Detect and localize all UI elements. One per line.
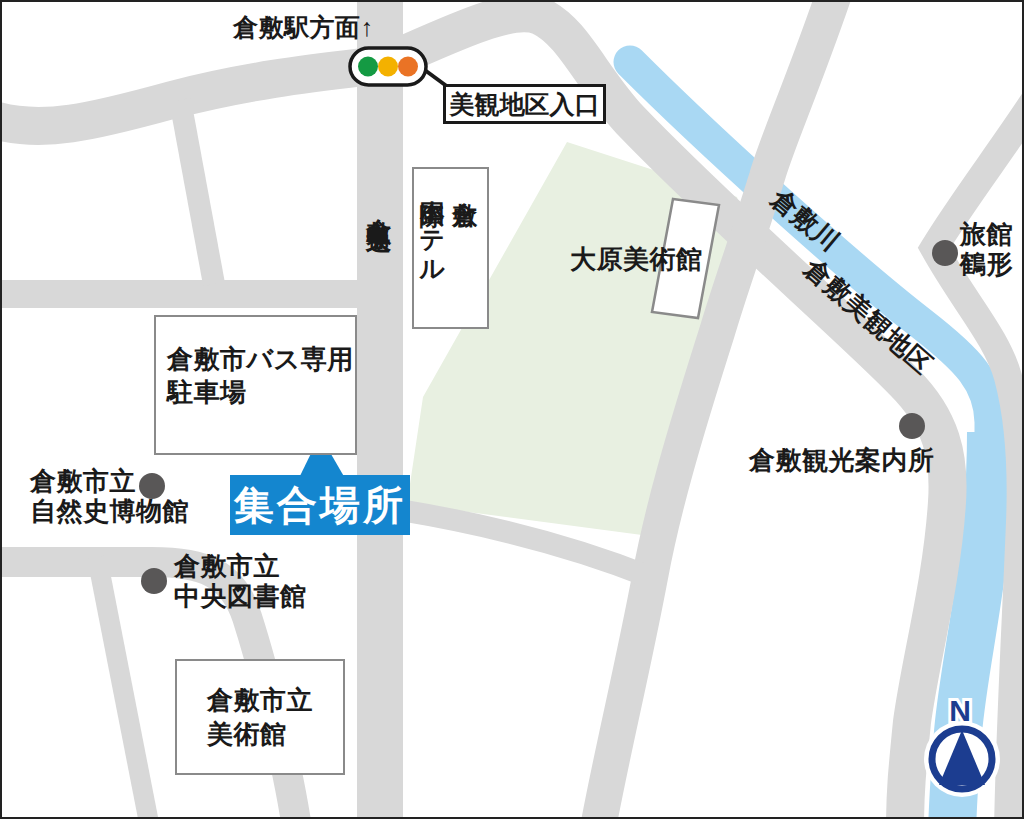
road-southwest-branch [97, 557, 150, 819]
city-art-museum-box: 倉敷市立 美術館 [175, 659, 345, 775]
meeting-point-callout: 集合場所 [230, 475, 410, 535]
road-west-diagonal [180, 100, 214, 284]
kokusai-hotel-label: 倉敷 国際ホテル [416, 183, 481, 271]
tourist-info-label: 倉敷観光案内所 [749, 445, 935, 476]
ryokan-tsurugata-dot [932, 240, 958, 266]
kokusai-hotel-box: 倉敷 国際ホテル [412, 167, 489, 329]
station-direction-label: 倉敷駅方面↑ [233, 12, 374, 42]
signal-green-light [358, 57, 378, 77]
bikan-entrance-label: 美観地区入口 [450, 89, 600, 119]
ryokan-tsurugata-label: 旅館 鶴形 [960, 220, 1013, 280]
central-library-label: 倉敷市立 中央図書館 [174, 551, 307, 612]
bikan-entrance-box: 美観地区入口 [443, 84, 606, 124]
bus-parking-box: 倉敷市バス専用 駐車場 [154, 315, 357, 455]
signal-orange-light [398, 57, 418, 77]
map-canvas: N 倉敷 国際ホテル 倉敷市バス専用 駐車場 倉敷市立 美術館 美観地区入口 集… [0, 0, 1024, 819]
chuo-dori-label: 倉敷中央通り [364, 199, 394, 240]
central-library-dot [141, 568, 167, 594]
traffic-light-icon [350, 48, 426, 85]
city-art-museum-label: 倉敷市立 美術館 [207, 684, 313, 752]
signal-amber-light [378, 57, 398, 77]
natural-history-museum-label: 倉敷市立 自然史博物館 [30, 466, 189, 527]
compass-north-label: N [949, 694, 971, 727]
tourist-info-dot [899, 413, 925, 439]
ohara-museum-label: 大原美術館 [570, 244, 703, 275]
meeting-point-label: 集合場所 [234, 478, 406, 533]
bus-parking-label: 倉敷市バス専用 駐車場 [167, 343, 354, 408]
compass-icon: N [924, 694, 1000, 797]
